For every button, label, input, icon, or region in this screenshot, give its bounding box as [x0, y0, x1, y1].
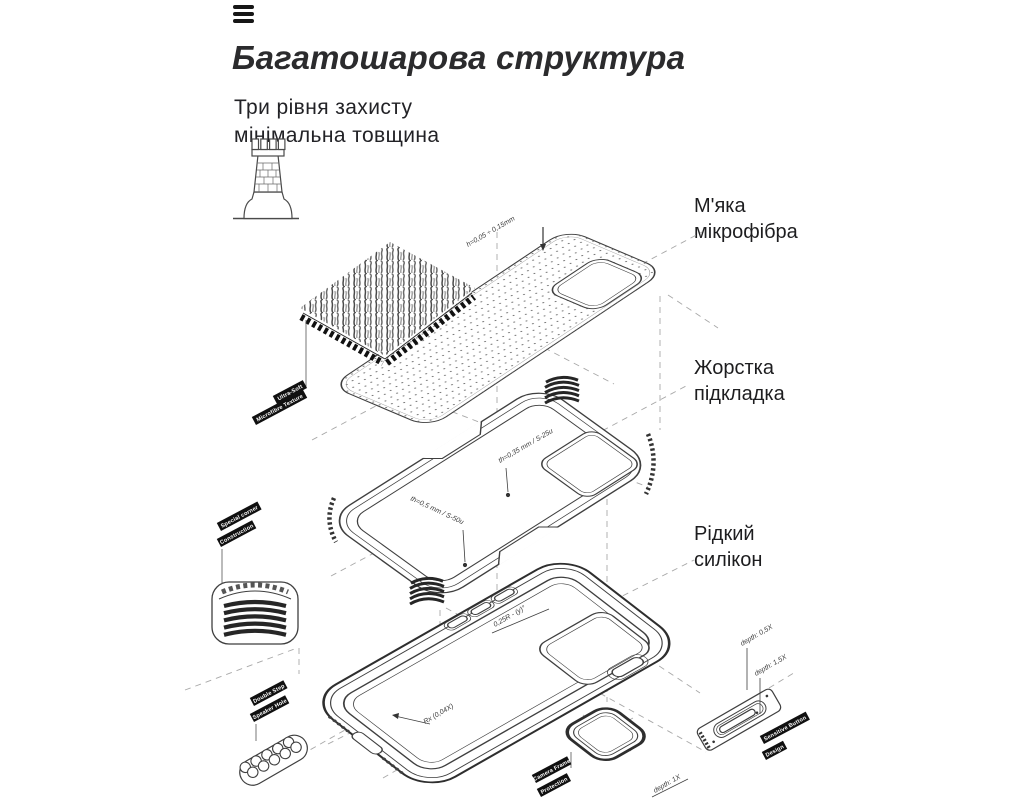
detail-corner-bumper: [212, 582, 298, 644]
layer-silicone-case: [305, 553, 684, 794]
corner-serration-right: [646, 434, 654, 494]
dim-thickness-top: h=0,05 ÷ 0,15mm: [466, 215, 517, 248]
corner-coils-top: [545, 377, 579, 403]
detail-button-plate: [696, 687, 783, 752]
dim-depth-15: depth: 1,5X: [754, 654, 789, 678]
dim-depth-05: depth: 0,5X: [740, 624, 775, 648]
svg-text:Sensitive Button: Sensitive Button: [763, 715, 808, 743]
detail-speaker-block: [235, 730, 312, 790]
corner-serration-left: [329, 498, 336, 542]
fortress-icon: [233, 139, 299, 219]
layer-hard-lining: [325, 377, 655, 604]
tag-design: Design: [762, 741, 787, 760]
exploded-case-diagram: h=0,05 ÷ 0,15mm th=0,35 mm / S-25u th=0,…: [0, 0, 1024, 800]
infographic-page: Багатошарова структура Три рівня захисту…: [0, 0, 1024, 800]
detail-camera-frame: [560, 704, 651, 765]
